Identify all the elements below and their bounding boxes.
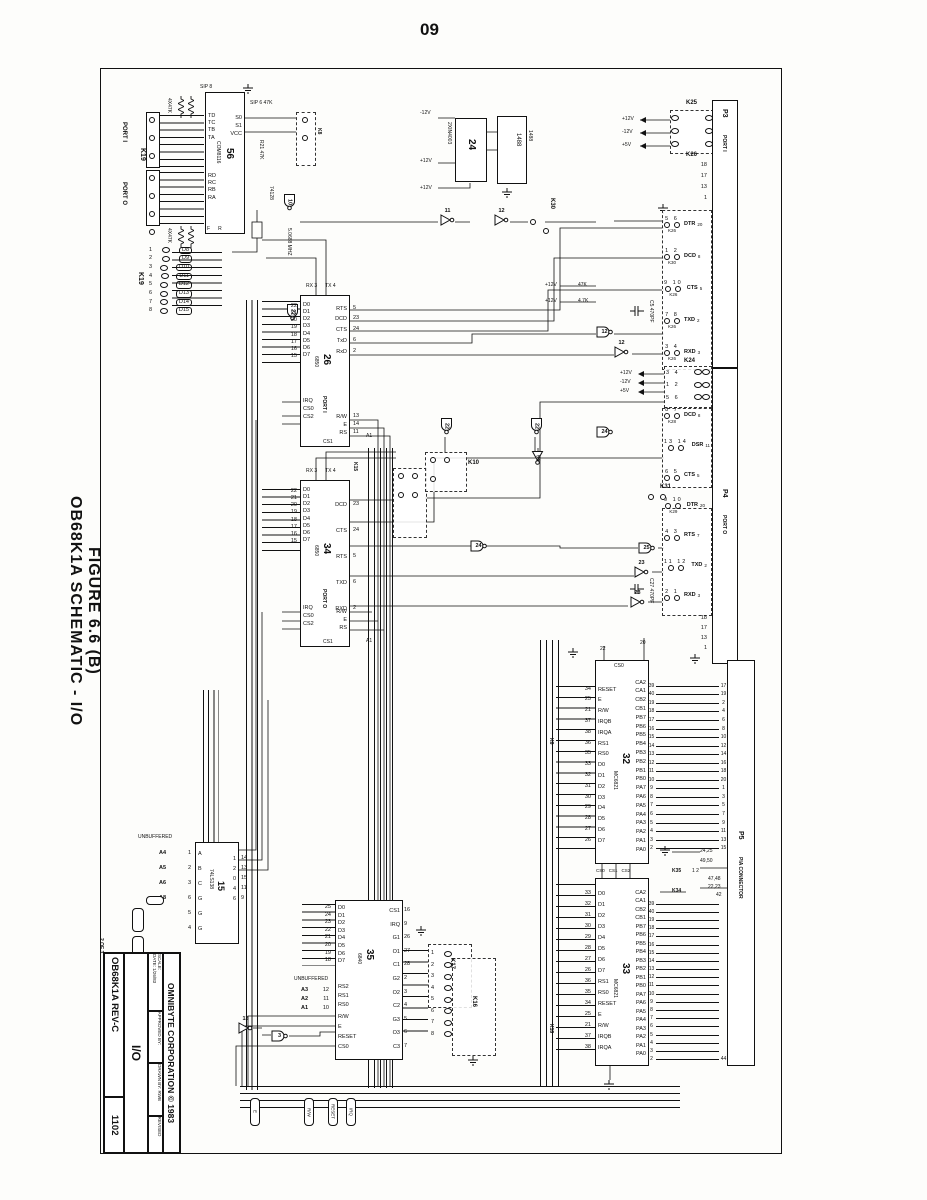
ic26-rctl-pins: R/WERS — [332, 414, 348, 438]
ground-icon — [502, 188, 512, 198]
inverter-gate: 11 — [440, 214, 455, 226]
scanned-schematic-page: { "page": {"number": "09"}, "side_title"… — [0, 0, 927, 1200]
ic26-ctl-pins: IRQCS0CS2 — [302, 398, 318, 422]
k31-label: K31 — [660, 484, 671, 491]
ic-56: 56 COM8116 TDTCTBTA RDRCRBRA S0S1VCC FR — [205, 92, 245, 234]
resistor-icon — [188, 226, 194, 248]
ic15-right-pin-numbers: 141315119 — [240, 854, 252, 904]
nand-gate: 22 — [531, 418, 543, 435]
ground-icon — [660, 846, 670, 856]
ic11-part2: 1488 — [527, 130, 533, 141]
k15-jumper — [393, 468, 427, 538]
p3-label: PORT I — [721, 135, 727, 152]
ic34-right-pins: DCDCTSRTSTXDRXD — [332, 493, 348, 623]
ic32-left-pin-numbers: 342521373836353332313029282726 — [580, 684, 592, 846]
nand-gate: 12 — [596, 326, 613, 338]
ic-33: 33 MC6821 D0D1D2D3D4D5D6D7RS1RS0RESETER/… — [595, 878, 649, 1066]
p3-signal-rows: 5 6 K26 DTR 20 1 2 K30 DCD 8 9 10 K26 CT… — [664, 208, 734, 368]
k30-contact — [543, 228, 549, 234]
p5-upper-rows: 3917401919218417616815101412131412161118… — [648, 682, 727, 853]
ic-32: 32 MC6821 CS0 RESETER/WIRQBIRQARS1RS0D0D… — [595, 660, 649, 864]
approved-label: APPROVED BY: — [148, 1011, 163, 1064]
k35-label: K35 — [672, 868, 681, 874]
gnd-pins-2425: 24,25 — [700, 848, 713, 854]
ic35-part: 6840 — [356, 953, 362, 964]
nand-gate: 24 — [596, 426, 613, 438]
ic-11: 1488 — [497, 116, 527, 184]
pins-2223: 22,23 — [708, 884, 721, 890]
ic34-top-pins: RX 3TX 4 — [306, 468, 342, 474]
inverter-gate: 23 — [630, 596, 645, 608]
ic15-ref: 15 — [216, 881, 226, 891]
drawing-number: 1102 — [104, 1097, 124, 1153]
k19-connector-top — [146, 112, 160, 168]
ic35-left-pin-numbers: 2524232221201918 — [320, 904, 332, 965]
arrow-icon — [638, 389, 644, 395]
ic35-ctl-pins: R/WERESETCS0 — [337, 1013, 359, 1053]
ic56-rx-pins: RDRCRBRA — [207, 173, 219, 202]
arrow-icon — [638, 371, 644, 377]
nand-gate: 10 — [284, 194, 296, 211]
r21-label: R21 47K — [258, 140, 264, 159]
resistor-icon — [188, 96, 194, 118]
ground-icon — [568, 648, 578, 658]
ic34-a1-label: A1 — [366, 638, 372, 644]
plus12-label: +12V — [420, 158, 432, 164]
p12-feed: +12V — [620, 370, 632, 376]
gate-74128-label: 74128 — [268, 186, 274, 200]
ic34-data-pins: D0D1D2D3D4D5D6D7 — [302, 487, 316, 545]
k8-jumper — [296, 112, 316, 166]
k35-pins: 1 2 — [692, 868, 699, 874]
crystal-label: 5.0688 MHZ — [286, 228, 292, 256]
k31-contact — [648, 494, 654, 500]
ground-icon — [468, 1056, 478, 1066]
k10-label: K10 — [468, 460, 479, 467]
k30-label: K30 — [548, 198, 555, 209]
drawn-label: DRAWN BY: RWB — [148, 1063, 163, 1116]
resistor-icon — [178, 226, 184, 248]
p4-ground-pins: 1817131 — [694, 614, 708, 654]
inverter-gate: 12 — [494, 214, 509, 226]
and-gate: 3 — [271, 1030, 288, 1042]
p5-feed: +5V — [622, 142, 631, 148]
ic26-cs1: CS1 — [323, 439, 333, 445]
inverter-gate: 23 — [634, 566, 649, 578]
k34-label: K34 — [672, 888, 681, 894]
ic32-right-pins: CA2CA1CB2CB1PB7PB6PB5PB4PB3PB2PB1PB0PA7P… — [631, 679, 647, 855]
ground-icon — [604, 1080, 614, 1090]
scale-label: SCALE: — [157, 954, 162, 1010]
p5-label: PIA CONNECTOR — [737, 857, 743, 899]
n12-feed: -12V — [620, 379, 631, 385]
c27-label: C27 470PF — [648, 578, 654, 603]
ic35-address-nets: A312A211A110 — [300, 986, 330, 1013]
ic33-ref: 33 — [620, 963, 631, 974]
p5-connector: P5 PIA CONNECTOR — [727, 660, 755, 1066]
k26-label: K26 — [686, 152, 697, 159]
net-stub: R/W — [304, 1098, 314, 1126]
ic33-top-pins: CS0CS1CS2 — [596, 868, 646, 873]
pins-4748: 47,48 — [708, 876, 721, 882]
arrow-icon — [640, 117, 646, 123]
ic26-left-pin-numbers: 2221201918171615 — [286, 303, 298, 361]
ic32-ref: 32 — [620, 753, 631, 764]
ic35-right-pin-numbers: 169262728234567 — [403, 904, 415, 1054]
arrow-icon — [640, 130, 646, 136]
p3-ref: P3 — [720, 109, 728, 118]
ic-26: 26 6850 PORT I D0D1D2D3D4D5D6D7 IRQCS0CS… — [300, 295, 350, 447]
ic56-tx-pins: TDTCTBTA — [207, 113, 219, 142]
ic35-ref: 35 — [364, 949, 375, 960]
ic56-part: COM8116 — [215, 141, 221, 163]
p5-lower-rows: 3940191817161514131211109876543244 — [648, 900, 727, 1064]
inverter-gate: 12 — [614, 346, 629, 358]
k19b-label: K19 — [136, 272, 144, 285]
ic56-right-pins: S0S1VCC — [229, 115, 243, 139]
ic11-part: 1488 — [514, 133, 521, 146]
k24-label: K24 — [684, 358, 695, 365]
net-stub: IRQ — [346, 1098, 356, 1126]
ic33-left-pin-numbers: 333231302928272636353425213738 — [580, 888, 592, 1053]
ic33-right-pins: CA2CA1CB2CB1PB7PB6PB5PB4PB3PB2PB1PB0PA7P… — [631, 889, 647, 1059]
wire-bundle — [158, 115, 204, 167]
p12-feed: +12V — [622, 116, 634, 122]
ic34-rctl-pins: R/WERS — [332, 609, 348, 633]
ic56-bottom-pins: FR — [207, 226, 237, 232]
minus12-label: -12V — [420, 110, 431, 116]
k19-connector-top2 — [146, 170, 160, 226]
wire-bundle — [203, 690, 219, 842]
ic32-pin22: 22 — [600, 646, 606, 652]
ground-icon — [690, 654, 700, 664]
k6-label: K6 — [548, 738, 554, 744]
p3-ground-pins: 1817131 — [694, 160, 708, 204]
ic15-left-nets: A41A52A63A8654 — [158, 846, 192, 936]
nand-gate: 24 — [470, 540, 487, 552]
ic34-ref: 34 — [321, 543, 332, 554]
sip8-label: SIP 8 — [200, 84, 212, 90]
ic24-ref: 24 — [466, 139, 477, 150]
resistor-pack-label: 4X47K — [166, 98, 172, 113]
k18-label: K18 — [548, 1024, 554, 1033]
ic15-part: 74LS138 — [208, 869, 214, 889]
port-o-label: PORT O — [120, 182, 127, 205]
ic26-right-pins: RTSDCDCTSTxDRxD — [332, 304, 348, 358]
gnd-pins-4950: 49,50 — [700, 858, 713, 864]
title-block: OMNIBYTE CORPORATION © 1983 SCALE: DATE:… — [103, 952, 179, 1152]
net-stub: E — [250, 1098, 260, 1126]
ic35-data-pins: D0D1D2D3D4D5D6D7 — [337, 905, 351, 966]
net-pill-a8 — [146, 896, 164, 905]
ic34-cs1: CS1 — [323, 639, 333, 645]
inverter-gate: 54 — [532, 451, 544, 466]
inverter-gate: 13 — [238, 1022, 253, 1034]
r47k-label: 47K — [578, 282, 587, 288]
sheet-subtitle: I/O — [124, 953, 148, 1153]
ic26-a1-label: A1 — [366, 433, 372, 439]
k25-jumper — [670, 110, 714, 154]
unbuffered-label: UNBUFFERED — [138, 834, 172, 840]
ic26-data-pins: D0D1D2D3D4D5D6D7 — [302, 302, 316, 360]
k15-label: K15 — [352, 462, 358, 471]
wire-bundle — [246, 300, 262, 1090]
ic34-left-pin-numbers: 2221201918171615 — [286, 488, 298, 546]
ic26-right-pin-numbers: 5232462 — [352, 303, 362, 357]
ic26-port: PORT I — [321, 396, 327, 413]
k16-label: K16 — [470, 996, 477, 1007]
arrow-icon — [638, 380, 644, 386]
capacitor-icon — [630, 306, 644, 316]
ic32-cs0: CS0 — [614, 663, 624, 669]
p4-signal-rows: 8 7 K28 DCD 8 13 14 DSR 11 6 5 CTS — [664, 400, 734, 610]
ground-icon — [416, 926, 426, 936]
plus12-label: +12V — [420, 185, 432, 191]
sip6-label: SIP 6 47K — [250, 100, 272, 106]
ic56-ref: 56 — [224, 148, 235, 159]
capacitor-icon — [630, 584, 644, 594]
resistor-icon — [178, 96, 184, 118]
p5-ref: P5 — [736, 831, 744, 840]
ic34-ctl-pins: IRQCS0CS2 — [302, 605, 318, 629]
k19-lower-connector: 1 D8 2 D9 3 D10 4 D11 5 D12 — [148, 246, 192, 316]
in4003-label: 2XIN4003 — [446, 122, 452, 144]
arrow-icon — [640, 143, 646, 149]
date-value: DATE: 1/26/83 — [152, 954, 157, 1010]
ic34-port: PORT O — [321, 589, 327, 608]
board-name: OB68K1A REV-C — [104, 953, 124, 1097]
nand-gate: 25 — [638, 542, 655, 554]
ic34-right-pin-numbers: 2324562 — [352, 492, 362, 622]
ic-15: 15 74LS138 ABCGGG 12046 — [195, 842, 239, 944]
k25-label: K25 — [686, 100, 697, 107]
ic26-rctl-pin-numbers: 131411 — [352, 413, 362, 437]
ic32-pin20: 20 — [640, 640, 646, 646]
unbuffered-label: UNBUFFERED — [294, 976, 328, 982]
p5-feed: +5V — [620, 388, 629, 394]
ic-34: 34 6850 PORT O D0D1D2D3D4D5D6D7 IRQCS0CS… — [300, 480, 350, 647]
ic26-top-pins: RX 3TX 4 — [306, 283, 342, 289]
port-i-label: PORT I — [120, 122, 127, 142]
revised-label: REVISED — [148, 1116, 163, 1153]
ic26-ref: 26 — [321, 354, 332, 365]
c5-label: C5 470PF — [648, 300, 654, 323]
ic15-right-pins: 12046 — [227, 855, 237, 905]
wire-bundle — [540, 640, 560, 1086]
k19-label: K19 — [138, 148, 146, 161]
k8-label: K8 — [316, 128, 322, 134]
ic-35: 35 6840 D0D1D2D3D4D5D6D7 RS2RS1RS0 R/WER… — [335, 900, 403, 1060]
ic35-adr-pins: RS2RS1RS0 — [337, 983, 355, 1010]
nand-gate: 22 — [441, 418, 453, 435]
k30-contact — [530, 219, 536, 225]
component-oval — [132, 908, 144, 932]
plus12-label: +12V — [545, 298, 557, 304]
r47k-label: 4.7K — [578, 298, 588, 304]
ground-icon — [243, 84, 253, 94]
resistor-pack-label: 4X47K — [166, 228, 172, 243]
ic35-right-pins: CS1IRQG1O1C1G2O2C2G3O3C3 — [385, 905, 401, 1055]
pin-42: 42 — [716, 892, 722, 898]
ic34-part: 6850 — [313, 545, 319, 556]
sheet-number: 2 OF 3 — [98, 938, 104, 953]
ic15-left-pins: ABCGGG — [197, 847, 207, 937]
ic32-left-pins: RESETER/WIRQBIRQARS1RS0D0D1D2D3D4D5D6D7 — [597, 685, 617, 847]
n12-feed: -12V — [622, 129, 633, 135]
k10-jumper — [425, 452, 467, 492]
k17-pin-rows: 12345678 — [430, 948, 452, 1040]
plus12-label: +12V — [545, 282, 557, 288]
wire-bundle — [158, 172, 204, 224]
ic-24: 24 — [455, 118, 487, 182]
company-name: OMNIBYTE CORPORATION © 1983 — [163, 953, 180, 1153]
ic33-left-pins: D0D1D2D3D4D5D6D7RS1RS0RESETER/WIRQBIRQA — [597, 889, 617, 1054]
net-stub: RESET — [328, 1098, 338, 1126]
k31-contact — [660, 494, 666, 500]
